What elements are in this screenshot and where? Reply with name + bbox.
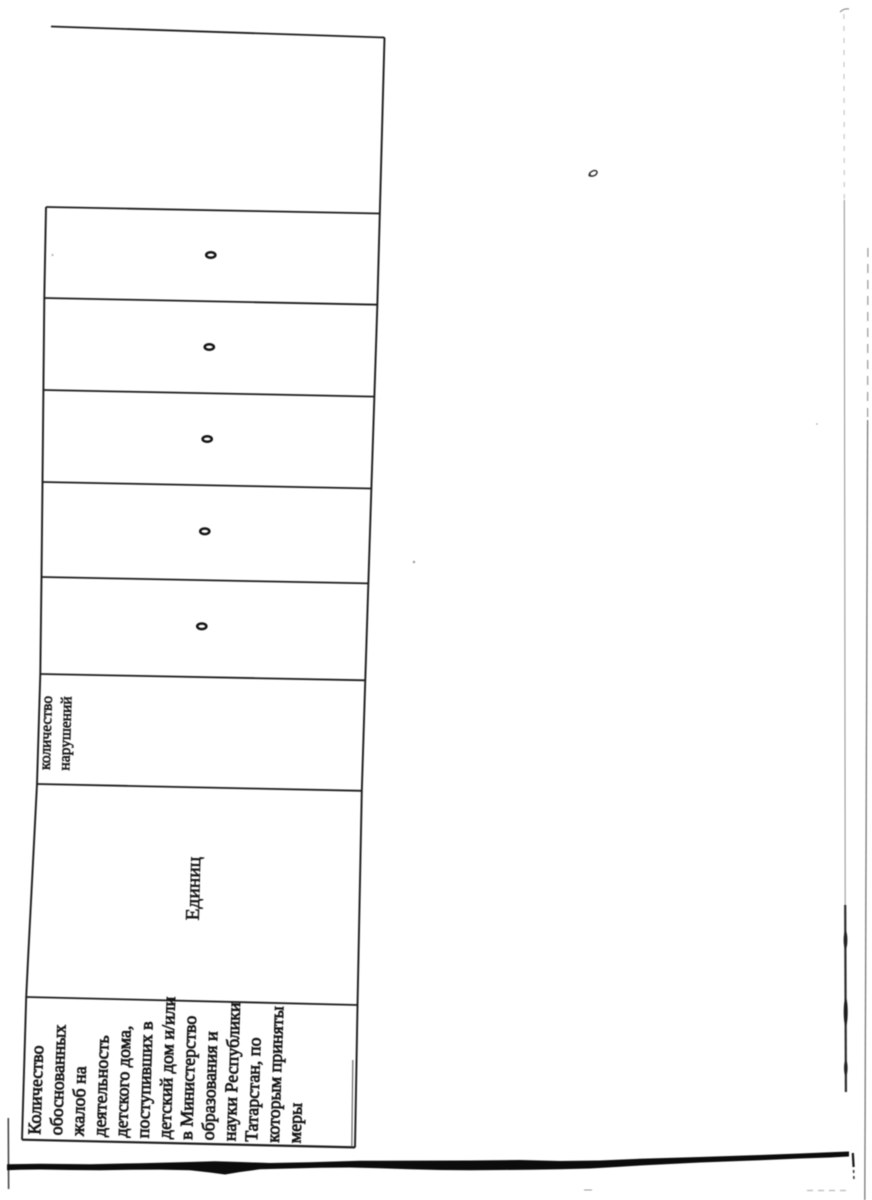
svg-text:Единиц: Единиц [183, 857, 206, 921]
